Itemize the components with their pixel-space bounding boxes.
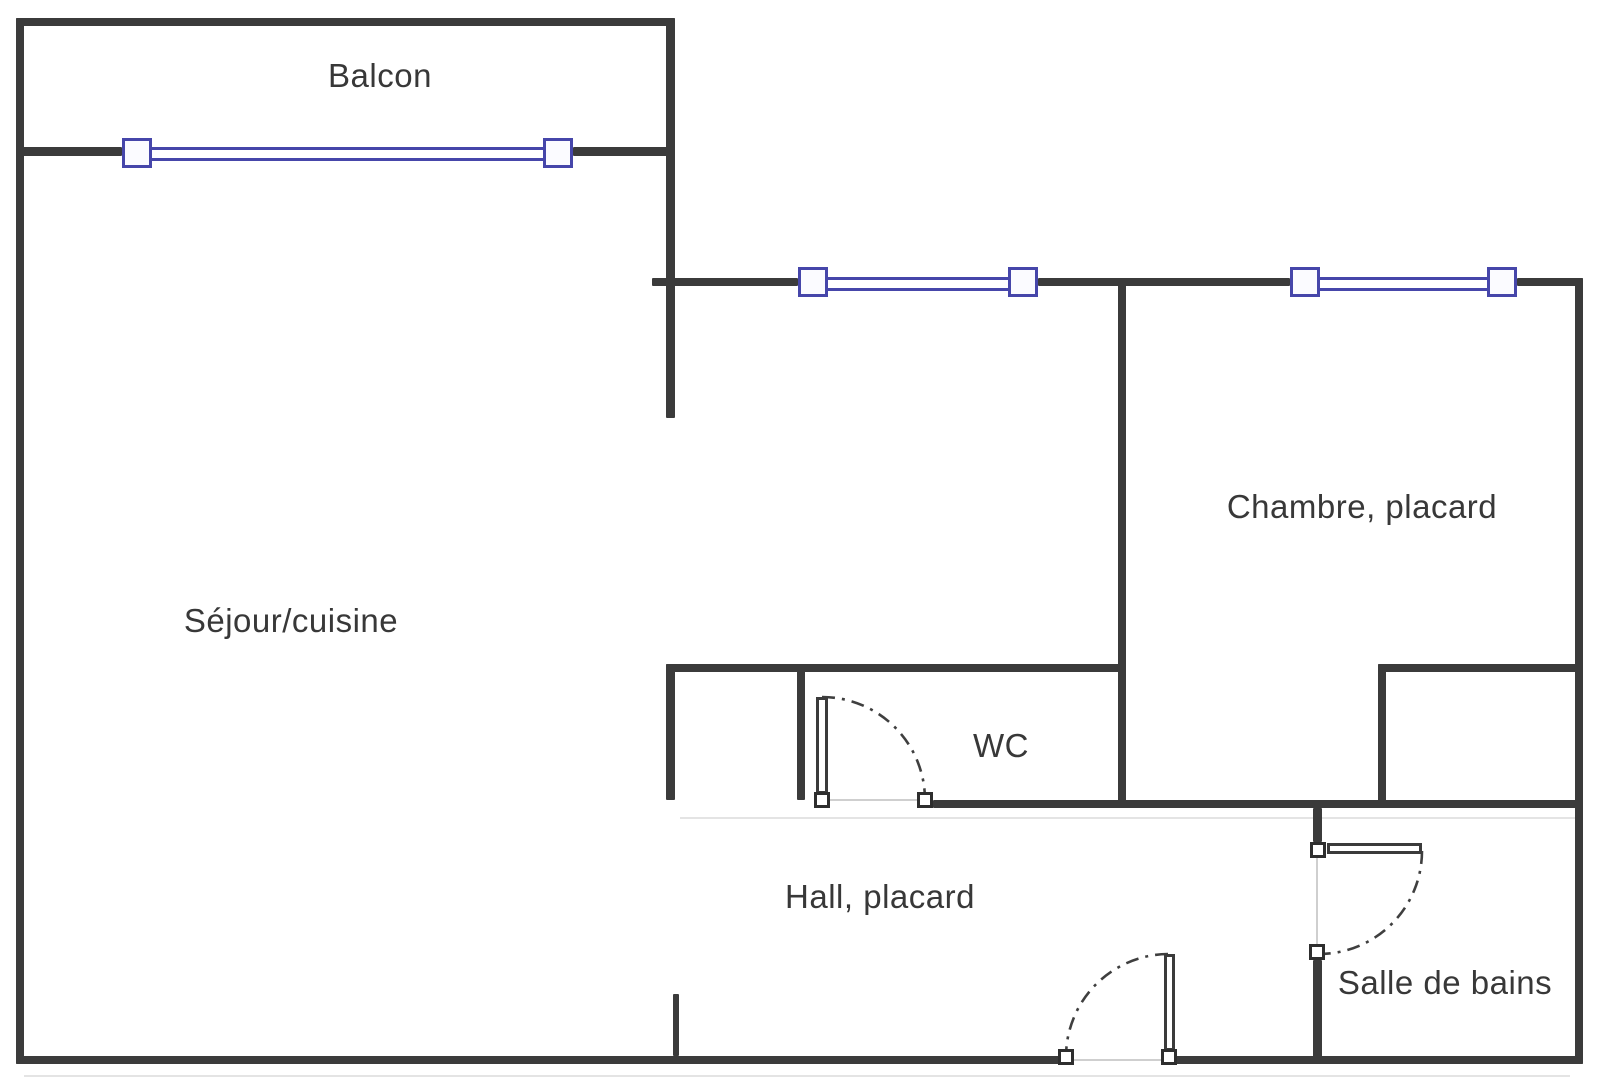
window-balcon-square-1: [543, 138, 573, 168]
sdb-door-opening: [1316, 858, 1318, 945]
wall-row-bottom-wall: [933, 800, 1583, 808]
window-chambre-rail-1: [1320, 288, 1487, 291]
wall-balcony-sill-right: [573, 147, 675, 156]
window-chambre-square-0: [1290, 267, 1320, 297]
wall-divider-mid-stub: [666, 664, 675, 800]
wall-balcony-sill-left: [16, 147, 122, 156]
window-balcon-rail-0: [152, 147, 543, 150]
wall-wc-top-wall: [666, 664, 1126, 672]
door-sdb-swing-arc: [1319, 851, 1422, 954]
door-wc-swing-arc: [822, 697, 925, 800]
wall-placard-left-wall: [1378, 664, 1386, 808]
door-sdb-latch: [1309, 944, 1325, 960]
window-hall-top-square-0: [798, 267, 828, 297]
wall-sdb-door-connector: [1313, 808, 1322, 842]
door-arc-overlay: [0, 0, 1600, 1089]
wc-door-opening: [830, 799, 917, 801]
wall-chambre-left-wall: [1118, 278, 1126, 808]
door-wc-hinge: [814, 792, 830, 808]
door-sdb-leaf: [1327, 843, 1422, 854]
door-entry-leaf: [1164, 954, 1175, 1051]
wall-shadow-bottom-wall-shadow: [24, 1075, 1570, 1077]
wall-wc-left-wall: [797, 664, 805, 800]
room-label-wc: WC: [973, 727, 1029, 765]
door-entry-swing-arc: [1066, 954, 1168, 1057]
window-balcon-square-0: [122, 138, 152, 168]
wall-placard-top-wall: [1378, 664, 1583, 672]
wall-right-wall: [1575, 278, 1583, 1064]
room-label-sejour: Séjour/cuisine: [184, 602, 398, 640]
wall-upper-wall-seg2: [1038, 278, 1290, 286]
window-hall-top-rail-0: [828, 277, 1008, 280]
entry-door-opening: [1074, 1059, 1161, 1061]
door-wc-latch: [917, 792, 933, 808]
door-entry-hinge: [1161, 1049, 1177, 1065]
door-sdb-hinge: [1310, 842, 1326, 858]
window-chambre-rail-0: [1320, 277, 1487, 280]
window-hall-top-rail-1: [828, 288, 1008, 291]
wall-bottom-wall-left: [16, 1056, 1074, 1064]
wall-left-wall: [16, 18, 24, 1064]
room-label-chambre: Chambre, placard: [1227, 488, 1497, 526]
room-label-sdb: Salle de bains: [1338, 964, 1552, 1002]
room-label-balcon: Balcon: [328, 57, 432, 95]
floor-plan: Balcon Séjour/cuisine Chambre, placard W…: [0, 0, 1600, 1089]
wall-shadow-row-wall-shadow: [680, 817, 1575, 819]
wall-divider-upper: [666, 18, 675, 418]
door-wc-leaf: [816, 697, 828, 794]
window-balcon-rail-1: [152, 158, 543, 161]
wall-sdb-left-wall-lower: [1313, 960, 1322, 1064]
wall-bottom-wall-right: [1161, 1056, 1583, 1064]
door-entry-latch: [1058, 1049, 1074, 1065]
wall-top-wall: [16, 18, 675, 26]
window-hall-top-square-1: [1008, 267, 1038, 297]
window-chambre-square-1: [1487, 267, 1517, 297]
wall-upper-wall-seg3: [1517, 278, 1583, 286]
room-label-hall: Hall, placard: [785, 878, 975, 916]
wall-bottom-stub: [673, 994, 679, 1056]
